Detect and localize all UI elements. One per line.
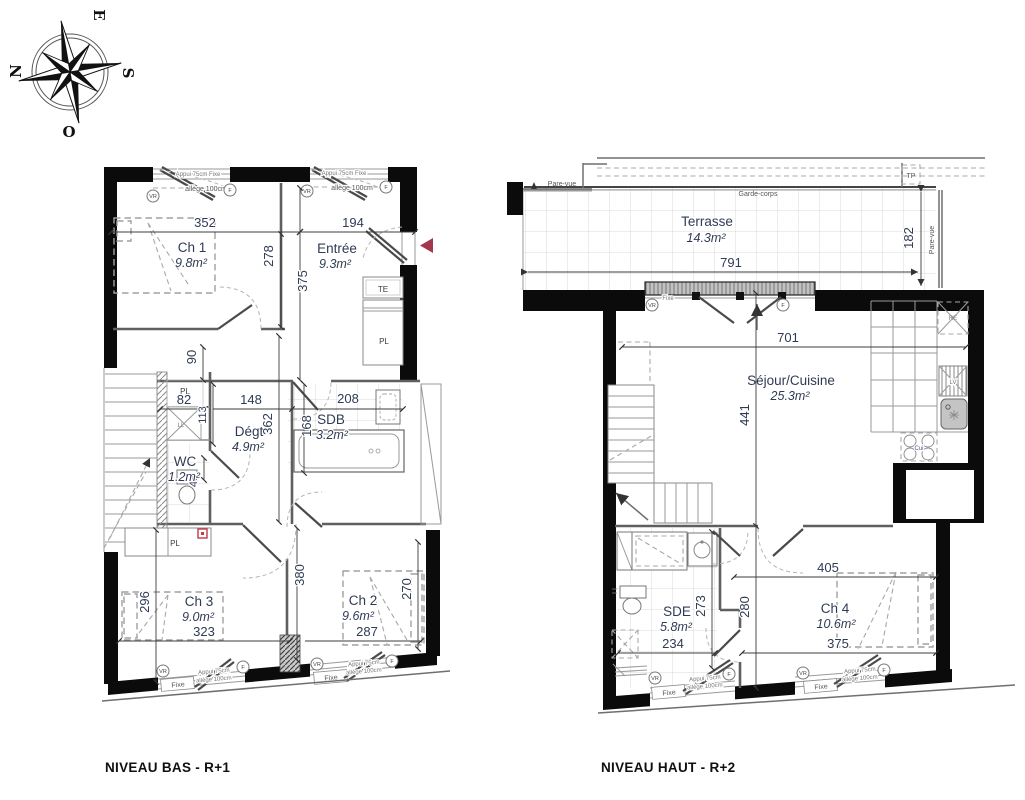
dim-sejour-width: 701 [777,330,799,345]
pare-vue-label: Pare-vue [548,181,577,188]
kitchen-counter: RE LV Cui [871,301,968,461]
window-note: Appui 75cm Fixe [176,172,221,178]
room-label-terrasse: Terrasse [681,214,733,229]
room-label-entree: Entrée [317,241,357,256]
floor-plan-high: TP Pare-vue Garde-corps Pare-vue Fixe VR [507,158,1015,713]
red-marker-square [198,529,207,538]
room-area-sdb: 3.2m² [316,428,349,442]
window-label-fixe: Fixe [662,689,676,697]
dim-ch1-height: 278 [261,245,276,267]
room-area-ch2: 9.6m² [342,609,375,623]
vr-badge-label: VR [648,303,656,309]
room-area-wc: 1.2m² [168,470,201,484]
dim-ch3-height: 296 [137,591,152,613]
dim-terrasse-height: 182 [901,227,916,249]
room-area-terrasse: 14.3m² [687,231,727,245]
shower-icon [617,532,687,570]
dim-sdb-width: 208 [337,391,359,406]
dim-sdb-height: 168 [299,415,314,437]
pare-vue-right-label: Pare-vue [929,226,936,255]
duct-inset [906,470,974,519]
window-bottom-1-low: Fixe Appui 75cm allège 100cm VR F [157,659,249,691]
sink-icon [941,399,967,429]
compass-rose: E N S O [7,9,137,141]
floor-plan-sheet: E N S O [0,0,1025,800]
bay-window: Fixe VR F [645,282,815,330]
dim-ch2-width: 287 [356,624,378,639]
dim-ch1-width: 352 [194,215,216,230]
room-area-ch3: 9.0m² [182,610,215,624]
dishwasher-label: LV [950,380,957,386]
washer-box-ll: LL [167,407,201,440]
washbasin-icon-sdb [376,390,400,424]
dim-terrasse-width: 791 [720,255,742,270]
window-label-fixe: Fixe [814,683,828,691]
vr-badge-label: VR [799,671,807,677]
room-label-ch3: Ch 3 [185,594,214,609]
room-area-ch4: 10.6m² [817,617,857,631]
window-note: allège 100cm [346,667,382,676]
bed-icon-ch4 [837,572,933,649]
door-wc [211,451,250,490]
dim-ch3-width: 323 [193,624,215,639]
compass-east-label: E [90,9,108,20]
staircase-high [608,385,712,523]
room-label-degt: Dégt [235,424,264,439]
hob-icon: Cui [901,433,937,461]
caption-low: NIVEAU BAS - R+1 [105,760,230,775]
vr-badge-label: VR [149,194,157,200]
room-label-sejour: Séjour/Cuisine [747,373,835,388]
roof-dashed-lines: TP [583,158,985,188]
compass-west-label: O [62,123,75,141]
room-area-sde: 5.8m² [660,620,693,634]
window-bottom-2-high: Fixe Appui 75cm allège 100cm VR F [795,655,890,693]
room-label-sdb: SDB [317,412,345,427]
dim-entree-width: 194 [342,215,364,230]
room-label-wc: WC [174,454,197,469]
floor-plan-drawing: E N S O [0,0,1025,800]
room-label-ch4: Ch 4 [821,601,850,616]
entrance-arrow-icon [420,238,433,253]
window-top-2: Appui 75cm Fixe allège 100cm VR F [301,167,392,200]
door-stair-hall [713,530,748,564]
dim-degt-width: 148 [240,392,262,407]
door-sejour-hall [758,528,803,573]
window-note: Appui 75cm Fixe [322,171,367,177]
closet-pl-bottom: PL [125,528,211,556]
dim-hall-height-high: 280 [737,596,752,618]
entrance-door [363,227,433,265]
compass-south-label: S [119,68,137,79]
dim-hall-height: 380 [292,564,307,586]
window-note: allège 100cm [185,186,227,193]
dim-pl-height: 113 [197,406,209,424]
exterior-shaft [421,384,441,524]
dim-entree-height: 375 [295,270,310,292]
fridge-label: RE [949,316,957,322]
window-top-1: Appui 75cm Fixe allège 100cm VR F [147,167,236,202]
hob-label: Cui [914,446,923,452]
dim-sde-height: 273 [693,595,708,617]
room-label-sde: SDE [663,604,691,619]
compass-north-label: N [7,64,25,78]
garde-corps-label: Garde-corps [739,191,778,198]
dim-ch2-height: 270 [399,578,414,600]
compass-star [10,12,130,132]
vr-badge-label: VR [159,669,167,675]
closet-pl-entree: PL [363,300,403,365]
room-area-sejour: 25.3m² [770,389,811,403]
room-area-entree: 9.3m² [319,257,352,271]
te-box: TE [363,277,403,298]
window-label-fixe: Fixe [171,681,185,689]
staircase-low [104,374,157,548]
caption-high: NIVEAU HAUT - R+2 [601,760,736,775]
terrace-post [507,182,523,215]
room-label-ch1: Ch 1 [178,240,207,255]
washer-label: LL [178,423,185,429]
terrace-tiles [524,188,936,290]
dim-ch4-width: 375 [827,636,849,651]
window-note: allège 100cm [331,185,373,192]
dim-sejour-height: 441 [737,404,752,426]
room-area-degt: 4.9m² [232,440,265,454]
closet-label: PL [379,337,389,346]
vr-badge-label: VR [313,662,321,668]
window-label-fixe: Fixe [662,296,674,302]
room-label-ch2: Ch 2 [349,593,378,608]
vr-badge-label: VR [651,676,659,682]
closet-label: PL [170,539,180,548]
te-label: TE [378,285,388,294]
floor-plan-low: LL PL PL TE PL [102,167,450,701]
dim-hall-width: 90 [184,350,199,364]
stair-wall-hatched [157,372,167,548]
room-area-ch1: 9.8m² [175,256,208,270]
pare-vue-arrow-icon [531,182,537,189]
dishwasher-icon: LV [939,366,967,396]
dim-pl-width: 82 [177,392,191,407]
washbasin-icon-sde [688,533,717,566]
dim-ch4-top-width: 405 [817,560,839,575]
tp-label: TP [907,173,916,180]
vr-badge-label: VR [303,189,311,195]
dim-sde-width: 234 [662,636,684,651]
door-ch1 [218,287,261,329]
